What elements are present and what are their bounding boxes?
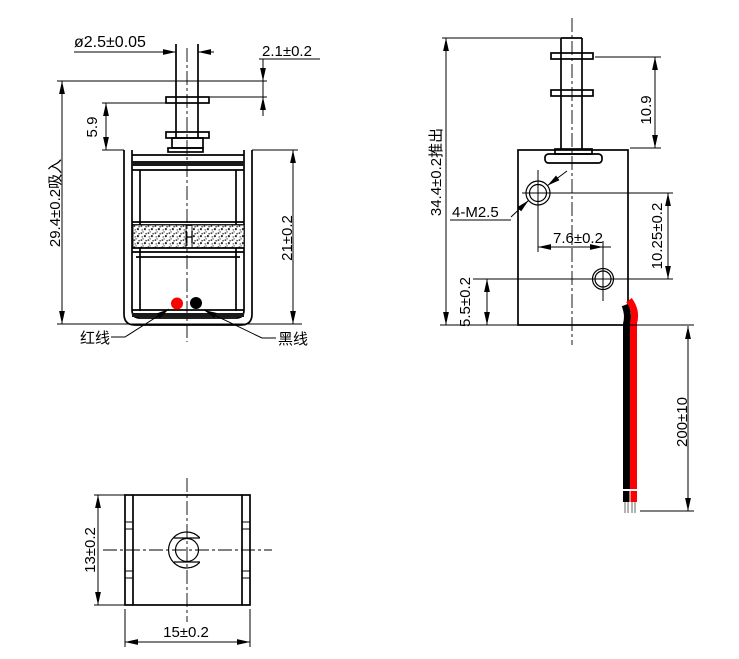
plunger-flange-upper	[166, 97, 209, 103]
black-wire-end	[623, 491, 630, 502]
bottom-plate	[132, 313, 244, 317]
front-view: ø2.5±0.05 2.1±0.2 5.9 29.4±0.2吸入 21±0.2 …	[47, 34, 320, 348]
lead-wire-black	[625, 305, 627, 489]
black-wire-dot	[190, 297, 202, 309]
dim-hole-spacing-vertical: 10.25±0.2	[649, 203, 666, 270]
red-wire-label: 红线	[80, 330, 110, 347]
side-view: 34.4±0.2推出 10.9 4-M2.5 7.6±0.2 10.25±0.2…	[428, 18, 694, 513]
dim-plunger-extension: 10.9	[638, 95, 655, 124]
side-bushing-plate	[545, 154, 602, 163]
front-dimensions: ø2.5±0.05 2.1±0.2 5.9 29.4±0.2吸入 21±0.2 …	[47, 34, 320, 348]
dim-mounting-thread: 4-M2.5	[452, 204, 499, 221]
front-plunger	[166, 44, 209, 152]
dim-hole-bottom-offset: 5.5±0.2	[457, 277, 474, 327]
side-plunger	[545, 38, 602, 163]
black-wire-label: 黑线	[278, 331, 308, 348]
bottom-view: 13±0.2 15±0.2	[82, 478, 272, 647]
dim-retracted-height: 29.4±0.2吸入	[47, 159, 64, 247]
bottom-dimensions: 13±0.2 15±0.2	[82, 495, 250, 647]
dim-extended-height: 34.4±0.2推出	[428, 128, 445, 216]
coil-winding-left	[133, 225, 186, 248]
thread-leader-lower	[511, 200, 529, 217]
red-wire-end	[631, 491, 638, 502]
dim-plunger-diameter: ø2.5±0.05	[74, 34, 146, 51]
red-wire-dot	[171, 298, 183, 310]
dim-stroke-gap: 2.1±0.2	[262, 43, 312, 60]
dim-hole-spacing-horizontal: 7.6±0.2	[553, 230, 603, 247]
lead-wires	[623, 300, 637, 513]
dim-lead-wire-length: 200±10	[674, 397, 691, 447]
dim-flange-offset: 5.9	[84, 117, 101, 138]
dim-body-width: 15±0.2	[163, 624, 209, 641]
plunger-base	[168, 148, 203, 152]
plunger-pedestal	[172, 138, 203, 148]
solenoid-dimension-drawing: ø2.5±0.05 2.1±0.2 5.9 29.4±0.2吸入 21±0.2 …	[0, 0, 739, 659]
thread-leader-upper	[547, 171, 567, 186]
coil-winding-right	[192, 225, 244, 248]
plunger-flange-lower	[166, 132, 209, 138]
dim-body-height: 21±0.2	[279, 215, 296, 261]
drawing-canvas: ø2.5±0.05 2.1±0.2 5.9 29.4±0.2吸入 21±0.2 …	[0, 0, 739, 659]
top-plate	[132, 161, 244, 166]
bare-wire-strands	[625, 502, 635, 513]
front-body	[124, 150, 252, 325]
dim-body-depth: 13±0.2	[82, 527, 99, 573]
